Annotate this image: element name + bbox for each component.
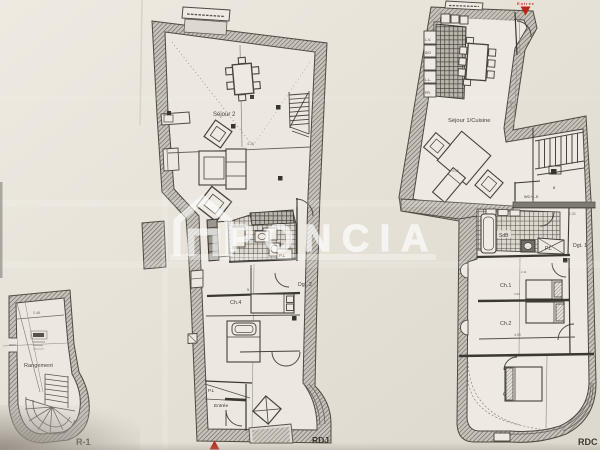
svg-text:1.33: 1.33 — [569, 212, 576, 216]
svg-text:Séjour 2: Séjour 2 — [213, 112, 236, 118]
svg-text:Séjour 1/Cuisine: Séjour 1/Cuisine — [448, 118, 491, 124]
svg-text:P.L: P.L — [208, 388, 215, 393]
svg-text:P.L: P.L — [545, 246, 552, 252]
svg-text:Ch.2: Ch.2 — [500, 321, 511, 327]
svg-text:WC+L.E: WC+L.E — [524, 194, 539, 199]
svg-text:Rangement: Rangement — [24, 363, 53, 369]
svg-text:SdB: SdB — [499, 233, 509, 239]
svg-text:4.58: 4.58 — [514, 333, 521, 337]
svg-text:Dgt. 1: Dgt. 1 — [573, 243, 587, 249]
svg-text:FR.: FR. — [425, 91, 431, 95]
svg-text:Ch.4: Ch.4 — [230, 300, 241, 306]
svg-text:4.70: 4.70 — [247, 142, 254, 146]
svg-text:L.V.: L.V. — [425, 38, 431, 42]
svg-text:Entrée: Entrée — [517, 1, 535, 6]
svg-text:4.33: 4.33 — [452, 169, 459, 173]
svg-text:5: 5 — [247, 288, 249, 292]
svg-text:2.11: 2.11 — [521, 270, 527, 274]
svg-text:Entrée: Entrée — [214, 403, 228, 409]
svg-text:L.L.: L.L. — [425, 78, 431, 82]
svg-text:5.40: 5.40 — [509, 101, 514, 108]
svg-text:Dgt. 2: Dgt. 2 — [298, 282, 312, 288]
svg-text:3.99: 3.99 — [514, 292, 520, 296]
svg-text:Ch.1: Ch.1 — [500, 283, 511, 289]
svg-text:2.48: 2.48 — [33, 311, 40, 315]
svg-text:S/O: S/O — [425, 51, 431, 55]
svg-text:PONCIA: PONCIA — [228, 218, 439, 260]
